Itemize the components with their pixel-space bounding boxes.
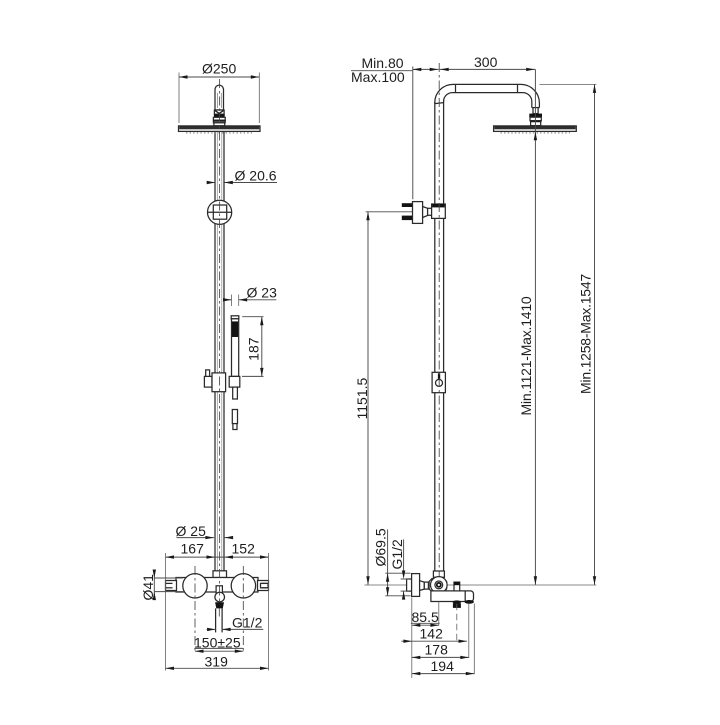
svg-text:Min.1121-Max.1410: Min.1121-Max.1410	[518, 296, 534, 415]
svg-text:Max.100: Max.100	[351, 69, 405, 85]
svg-text:Ø 20.6: Ø 20.6	[235, 168, 277, 184]
svg-text:G1/2: G1/2	[389, 539, 405, 570]
svg-text:167: 167	[181, 541, 205, 557]
svg-text:G1/2: G1/2	[232, 615, 263, 631]
svg-text:Ø 25: Ø 25	[176, 523, 207, 539]
svg-text:178: 178	[425, 642, 449, 658]
svg-text:Ø69.5: Ø69.5	[372, 528, 388, 566]
svg-text:300: 300	[474, 54, 498, 70]
svg-text:194: 194	[431, 658, 455, 674]
svg-text:150±25: 150±25	[194, 634, 241, 650]
svg-text:319: 319	[205, 654, 229, 670]
svg-text:Ø41: Ø41	[140, 574, 156, 601]
svg-text:85.5: 85.5	[412, 609, 439, 625]
svg-text:Min.1258-Max.1547: Min.1258-Max.1547	[578, 274, 594, 394]
svg-text:187: 187	[246, 337, 262, 361]
svg-text:152: 152	[232, 541, 256, 557]
svg-text:Ø 23: Ø 23	[247, 285, 278, 301]
svg-text:Ø250: Ø250	[202, 61, 236, 77]
svg-text:1151.5: 1151.5	[354, 378, 370, 420]
svg-text:142: 142	[420, 625, 444, 641]
